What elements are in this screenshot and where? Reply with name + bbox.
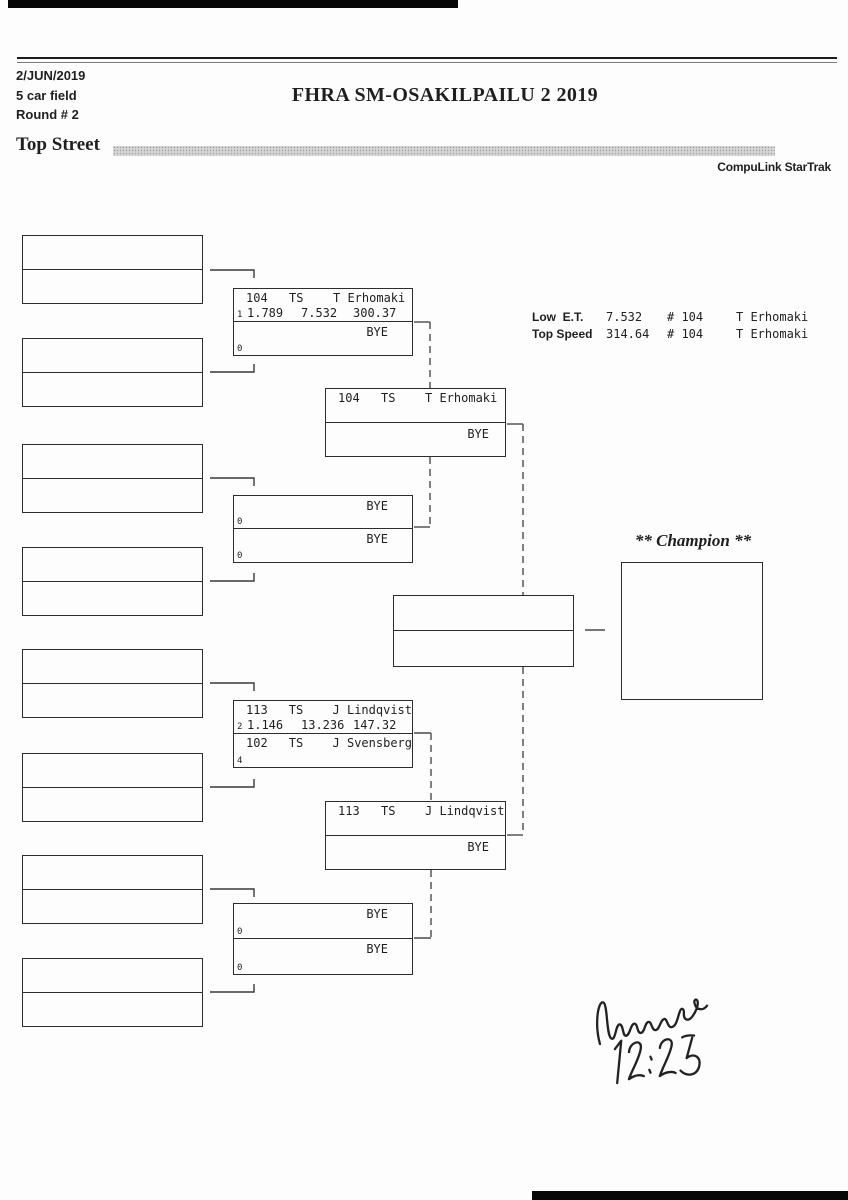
- class-abbrev: TS: [381, 804, 425, 818]
- top-speed-label: Top Speed: [532, 327, 606, 341]
- round1-slot-5: [22, 649, 203, 718]
- top-speed-car: # 104: [667, 327, 736, 341]
- bye-label: BYE: [366, 942, 388, 956]
- match-upper-entry: 104 TS T Erhomaki 1.789 7.532 300.37 1: [234, 289, 412, 322]
- class-abbrev: TS: [289, 291, 333, 305]
- champion-box: [621, 562, 763, 700]
- match-lower-entry: BYE 0: [234, 529, 412, 562]
- elapsed-time: 13.236: [301, 718, 353, 732]
- driver-name: J Lindqvist: [333, 703, 412, 717]
- car-number: 113: [338, 804, 381, 818]
- match-upper-entry: BYE 0: [234, 496, 412, 529]
- round1-slot-3: [22, 444, 203, 513]
- driver-name: T Erhomaki: [425, 391, 505, 405]
- match-upper-entry: [394, 596, 573, 631]
- slot-upper: [23, 959, 202, 993]
- slot-upper: [23, 236, 202, 270]
- seed-number: 0: [237, 517, 242, 527]
- low-et-car: # 104: [667, 310, 736, 324]
- sixty-foot-time: 1.789: [247, 306, 301, 320]
- bye-label: BYE: [366, 532, 388, 546]
- slot-upper: [23, 445, 202, 479]
- slot-upper: [23, 339, 202, 373]
- slot-lower: [23, 582, 202, 616]
- champion-label: ** Champion **: [622, 531, 764, 551]
- match-lower-entry: [394, 631, 573, 666]
- round2-match-1: 104 TS T Erhomaki 1.789 7.532 300.37 1 B…: [233, 288, 413, 356]
- round1-slot-6: [22, 753, 203, 822]
- match-upper-entry: BYE 0: [234, 904, 412, 939]
- match-lower-entry: BYE 0: [234, 322, 412, 355]
- low-et-driver: T Erhomaki: [736, 310, 842, 324]
- round1-slot-7: [22, 855, 203, 924]
- bye-label: BYE: [366, 325, 388, 339]
- low-et-row: Low E.T. 7.532 # 104 T Erhomaki: [532, 310, 842, 324]
- seed-number: 0: [237, 551, 242, 561]
- trap-speed: 300.37: [353, 306, 396, 320]
- top-speed-driver: T Erhomaki: [736, 327, 842, 341]
- slot-upper: [23, 650, 202, 684]
- handwriting-area: [588, 980, 738, 1095]
- slot-upper: [23, 548, 202, 582]
- seed-number: 0: [237, 927, 242, 937]
- bye-label: BYE: [366, 499, 388, 513]
- bye-label: BYE: [467, 427, 489, 441]
- trap-speed: 147.32: [353, 718, 396, 732]
- elapsed-time: 7.532: [301, 306, 353, 320]
- slot-upper: [23, 856, 202, 890]
- final-match: [393, 595, 574, 667]
- slot-lower: [23, 890, 202, 924]
- driver-name: T Erhomaki: [333, 291, 412, 305]
- low-et-value: 7.532: [606, 310, 667, 324]
- top-speed-row: Top Speed 314.64 # 104 T Erhomaki: [532, 327, 842, 341]
- bye-label: BYE: [467, 840, 489, 854]
- match-upper-entry: 113 TS J Lindqvist 1.146 13.236 147.32 2: [234, 701, 412, 734]
- seed-number: 4: [237, 756, 242, 766]
- time-handwriting: [614, 1035, 700, 1083]
- car-number: 104: [338, 391, 381, 405]
- round2-match-2: BYE 0 BYE 0: [233, 495, 413, 563]
- round1-stubs: [210, 270, 254, 992]
- match-lower-entry: BYE: [326, 423, 505, 457]
- round1-slot-8: [22, 958, 203, 1027]
- round1-slot-4: [22, 547, 203, 616]
- round1-slot-1: [22, 235, 203, 304]
- sixty-foot-time: 1.146: [247, 718, 301, 732]
- round1-slot-2: [22, 338, 203, 407]
- class-abbrev: TS: [289, 703, 333, 717]
- car-number: 113: [246, 703, 289, 717]
- slot-lower: [23, 373, 202, 407]
- slot-upper: [23, 754, 202, 788]
- semifinal-match-1: 104 TS T Erhomaki BYE: [325, 388, 506, 457]
- scanned-bracket-sheet: 2/JUN/2019 5 car field Round # 2 FHRA SM…: [0, 0, 848, 1200]
- class-abbrev: TS: [289, 736, 333, 750]
- slot-lower: [23, 479, 202, 513]
- slot-lower: [23, 270, 202, 304]
- seed-number: 1: [237, 310, 242, 320]
- low-et-label: Low E.T.: [532, 310, 606, 324]
- slot-lower: [23, 993, 202, 1027]
- match-lower-entry: 102 TS J Svensberg 4: [234, 734, 412, 767]
- match-upper-entry: 113 TS J Lindqvist: [326, 802, 505, 836]
- top-speed-value: 314.64: [606, 327, 667, 341]
- semifinal-match-2: 113 TS J Lindqvist BYE: [325, 801, 506, 870]
- seed-number: 0: [237, 344, 242, 354]
- car-number: 102: [246, 736, 289, 750]
- bye-label: BYE: [366, 907, 388, 921]
- seed-number: 2: [237, 722, 242, 732]
- slot-lower: [23, 684, 202, 718]
- car-number: 104: [246, 291, 289, 305]
- round2-match-4: BYE 0 BYE 0: [233, 903, 413, 975]
- driver-name: J Lindqvist: [425, 804, 505, 818]
- driver-name: J Svensberg: [333, 736, 412, 750]
- match-lower-entry: BYE: [326, 836, 505, 870]
- round2-match-3: 113 TS J Lindqvist 1.146 13.236 147.32 2…: [233, 700, 413, 768]
- slot-lower: [23, 788, 202, 822]
- match-lower-entry: BYE 0: [234, 939, 412, 974]
- seed-number: 0: [237, 963, 242, 973]
- class-abbrev: TS: [381, 391, 425, 405]
- match-upper-entry: 104 TS T Erhomaki: [326, 389, 505, 423]
